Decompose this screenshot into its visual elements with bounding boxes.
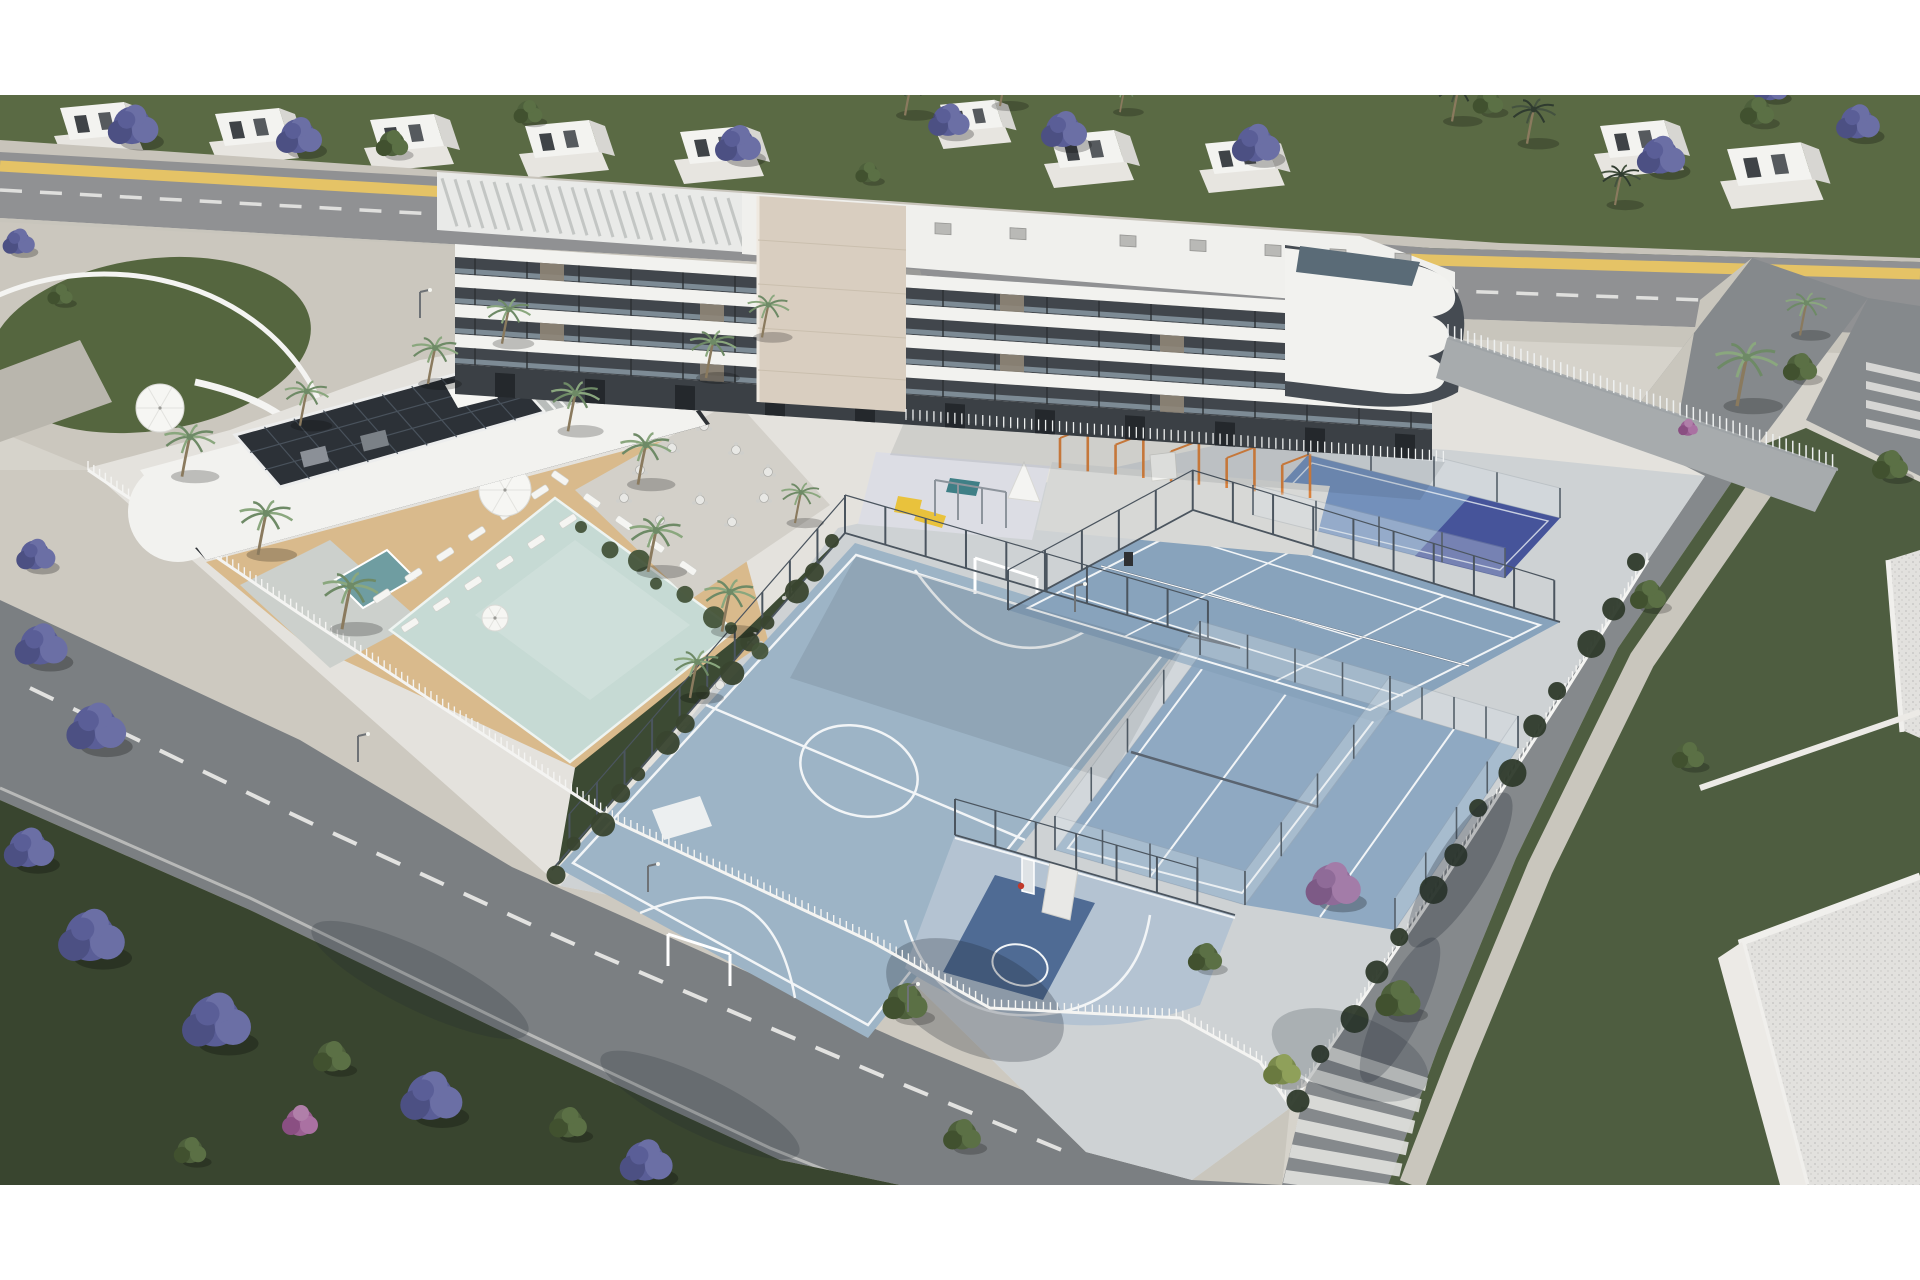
trash-bin (1124, 552, 1133, 566)
umbrella (482, 605, 508, 631)
architectural-render (0, 0, 1920, 1280)
render-scene (0, 95, 1920, 1185)
umbrella (136, 384, 184, 432)
elevator-tower (758, 196, 906, 412)
house (519, 120, 615, 178)
rim (1018, 883, 1024, 889)
house (1720, 142, 1830, 209)
